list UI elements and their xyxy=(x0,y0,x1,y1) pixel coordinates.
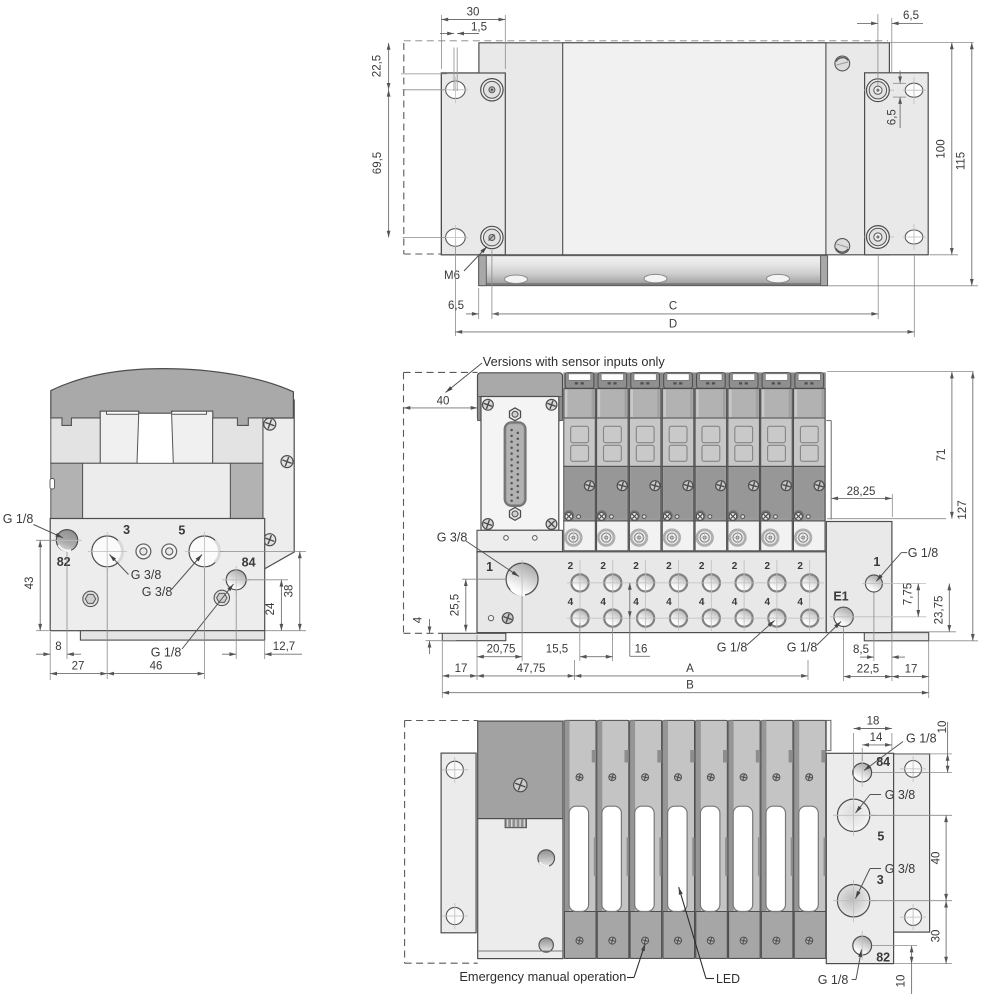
svg-text:4: 4 xyxy=(633,597,639,608)
svg-text:23,75: 23,75 xyxy=(934,596,946,625)
svg-text:M6: M6 xyxy=(444,270,460,282)
svg-text:D: D xyxy=(669,319,677,331)
svg-text:17: 17 xyxy=(455,663,468,675)
svg-text:115: 115 xyxy=(956,152,968,170)
svg-text:1: 1 xyxy=(873,555,880,569)
svg-text:5: 5 xyxy=(877,830,884,844)
svg-text:4: 4 xyxy=(732,597,738,608)
svg-text:G 1/8: G 1/8 xyxy=(717,641,748,655)
svg-text:16: 16 xyxy=(635,643,648,655)
svg-text:G 1/8: G 1/8 xyxy=(3,512,34,526)
svg-text:15,5: 15,5 xyxy=(546,643,568,655)
svg-text:69,5: 69,5 xyxy=(372,152,384,174)
svg-text:40: 40 xyxy=(931,852,943,865)
svg-text:100: 100 xyxy=(936,139,948,158)
svg-text:LED: LED xyxy=(716,971,740,986)
svg-text:30: 30 xyxy=(467,7,480,19)
svg-text:14: 14 xyxy=(870,732,883,744)
svg-text:2: 2 xyxy=(600,561,606,572)
svg-text:2: 2 xyxy=(797,561,803,572)
svg-text:6,5: 6,5 xyxy=(448,300,464,312)
svg-text:127: 127 xyxy=(957,500,969,519)
svg-text:2: 2 xyxy=(765,561,771,572)
svg-text:82: 82 xyxy=(57,555,71,569)
svg-text:4: 4 xyxy=(413,616,425,623)
svg-text:71: 71 xyxy=(936,449,948,462)
svg-text:E1: E1 xyxy=(833,590,848,604)
svg-text:43: 43 xyxy=(24,577,36,590)
svg-text:4: 4 xyxy=(600,597,606,608)
svg-text:46: 46 xyxy=(150,661,163,673)
svg-text:24: 24 xyxy=(265,602,277,615)
svg-text:C: C xyxy=(669,301,677,313)
svg-text:A: A xyxy=(686,663,694,675)
svg-text:G 3/8: G 3/8 xyxy=(437,531,468,545)
svg-text:7,75: 7,75 xyxy=(903,583,915,605)
svg-text:22,5: 22,5 xyxy=(857,663,879,675)
svg-text:6,5: 6,5 xyxy=(887,109,899,125)
svg-text:G 3/8: G 3/8 xyxy=(142,585,173,599)
svg-text:2: 2 xyxy=(633,561,639,572)
svg-text:6,5: 6,5 xyxy=(903,10,919,22)
svg-text:8,5: 8,5 xyxy=(853,644,869,656)
svg-text:12,7: 12,7 xyxy=(273,641,295,653)
svg-text:20,75: 20,75 xyxy=(487,643,516,655)
svg-text:G 1/8: G 1/8 xyxy=(818,973,849,987)
svg-text:3: 3 xyxy=(123,523,130,537)
svg-text:4: 4 xyxy=(797,597,803,608)
svg-text:4: 4 xyxy=(699,597,705,608)
svg-text:47,75: 47,75 xyxy=(517,663,546,675)
svg-text:1: 1 xyxy=(486,560,493,574)
svg-text:27: 27 xyxy=(72,661,85,673)
svg-text:4: 4 xyxy=(765,597,771,608)
svg-text:4: 4 xyxy=(666,597,672,608)
svg-text:28,25: 28,25 xyxy=(847,486,876,498)
svg-text:G 3/8: G 3/8 xyxy=(131,568,162,582)
svg-text:2: 2 xyxy=(699,561,705,572)
svg-text:5: 5 xyxy=(178,524,185,538)
svg-text:G 3/8: G 3/8 xyxy=(885,788,916,802)
svg-text:22,5: 22,5 xyxy=(372,55,384,77)
svg-text:10: 10 xyxy=(896,975,908,988)
svg-text:2: 2 xyxy=(732,561,738,572)
svg-text:84: 84 xyxy=(876,755,890,769)
svg-text:40: 40 xyxy=(437,396,450,408)
svg-text:B: B xyxy=(686,680,694,692)
svg-text:2: 2 xyxy=(568,561,574,572)
svg-text:G 1/8: G 1/8 xyxy=(151,646,182,660)
svg-text:G 3/8: G 3/8 xyxy=(885,862,916,876)
svg-text:82: 82 xyxy=(876,951,890,965)
svg-text:8: 8 xyxy=(55,641,61,653)
svg-text:38: 38 xyxy=(284,585,296,598)
svg-text:17: 17 xyxy=(905,663,918,675)
svg-text:Emergency manual operation: Emergency manual operation xyxy=(459,969,626,984)
svg-text:4: 4 xyxy=(568,597,574,608)
svg-text:G 1/8: G 1/8 xyxy=(787,641,818,655)
svg-text:84: 84 xyxy=(242,556,256,570)
svg-text:10: 10 xyxy=(937,721,949,734)
svg-text:Versions with sensor inputs on: Versions with sensor inputs only xyxy=(483,354,665,369)
svg-text:30: 30 xyxy=(931,930,943,943)
svg-text:25,5: 25,5 xyxy=(450,594,462,616)
svg-text:18: 18 xyxy=(867,716,880,728)
svg-text:G 1/8: G 1/8 xyxy=(908,546,939,560)
svg-text:2: 2 xyxy=(666,561,672,572)
svg-text:G 1/8: G 1/8 xyxy=(906,732,937,746)
svg-text:3: 3 xyxy=(877,873,884,887)
svg-text:1,5: 1,5 xyxy=(471,22,487,34)
